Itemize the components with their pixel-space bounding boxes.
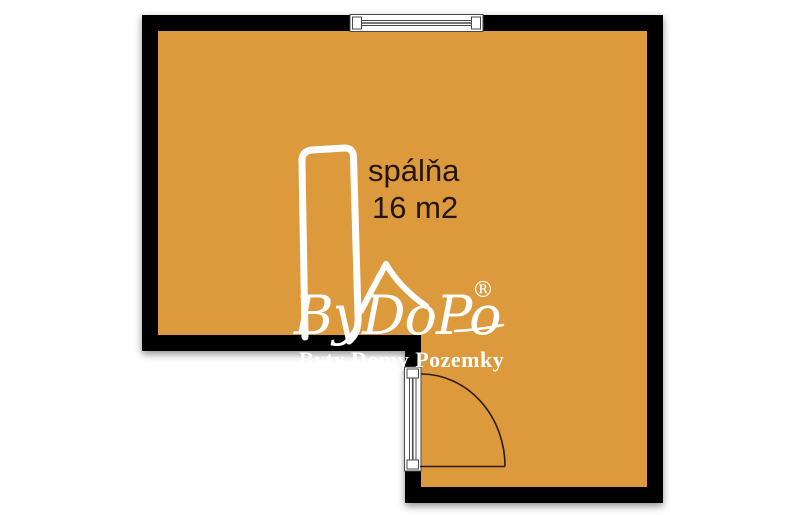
- room-floor: [158, 31, 647, 487]
- window-end-block: [472, 17, 481, 29]
- room-area-label: 16 m2: [372, 190, 458, 225]
- registered-mark: ®: [472, 278, 494, 303]
- brand-text: ByDoPo: [293, 284, 501, 347]
- window-symbol: [350, 15, 483, 32]
- brand-tagline: Byty Domy Pozemky: [299, 347, 504, 372]
- floor-plan: spálňa 16 m2 ByDoPo ® Byty Domy Pozemky: [142, 15, 663, 504]
- floor-plan-canvas: spálňa 16 m2 ByDoPo ® Byty Domy Pozemky: [0, 0, 800, 515]
- door-end-block: [407, 460, 419, 469]
- window-end-block: [353, 17, 362, 29]
- room-name-label: spálňa: [368, 153, 460, 188]
